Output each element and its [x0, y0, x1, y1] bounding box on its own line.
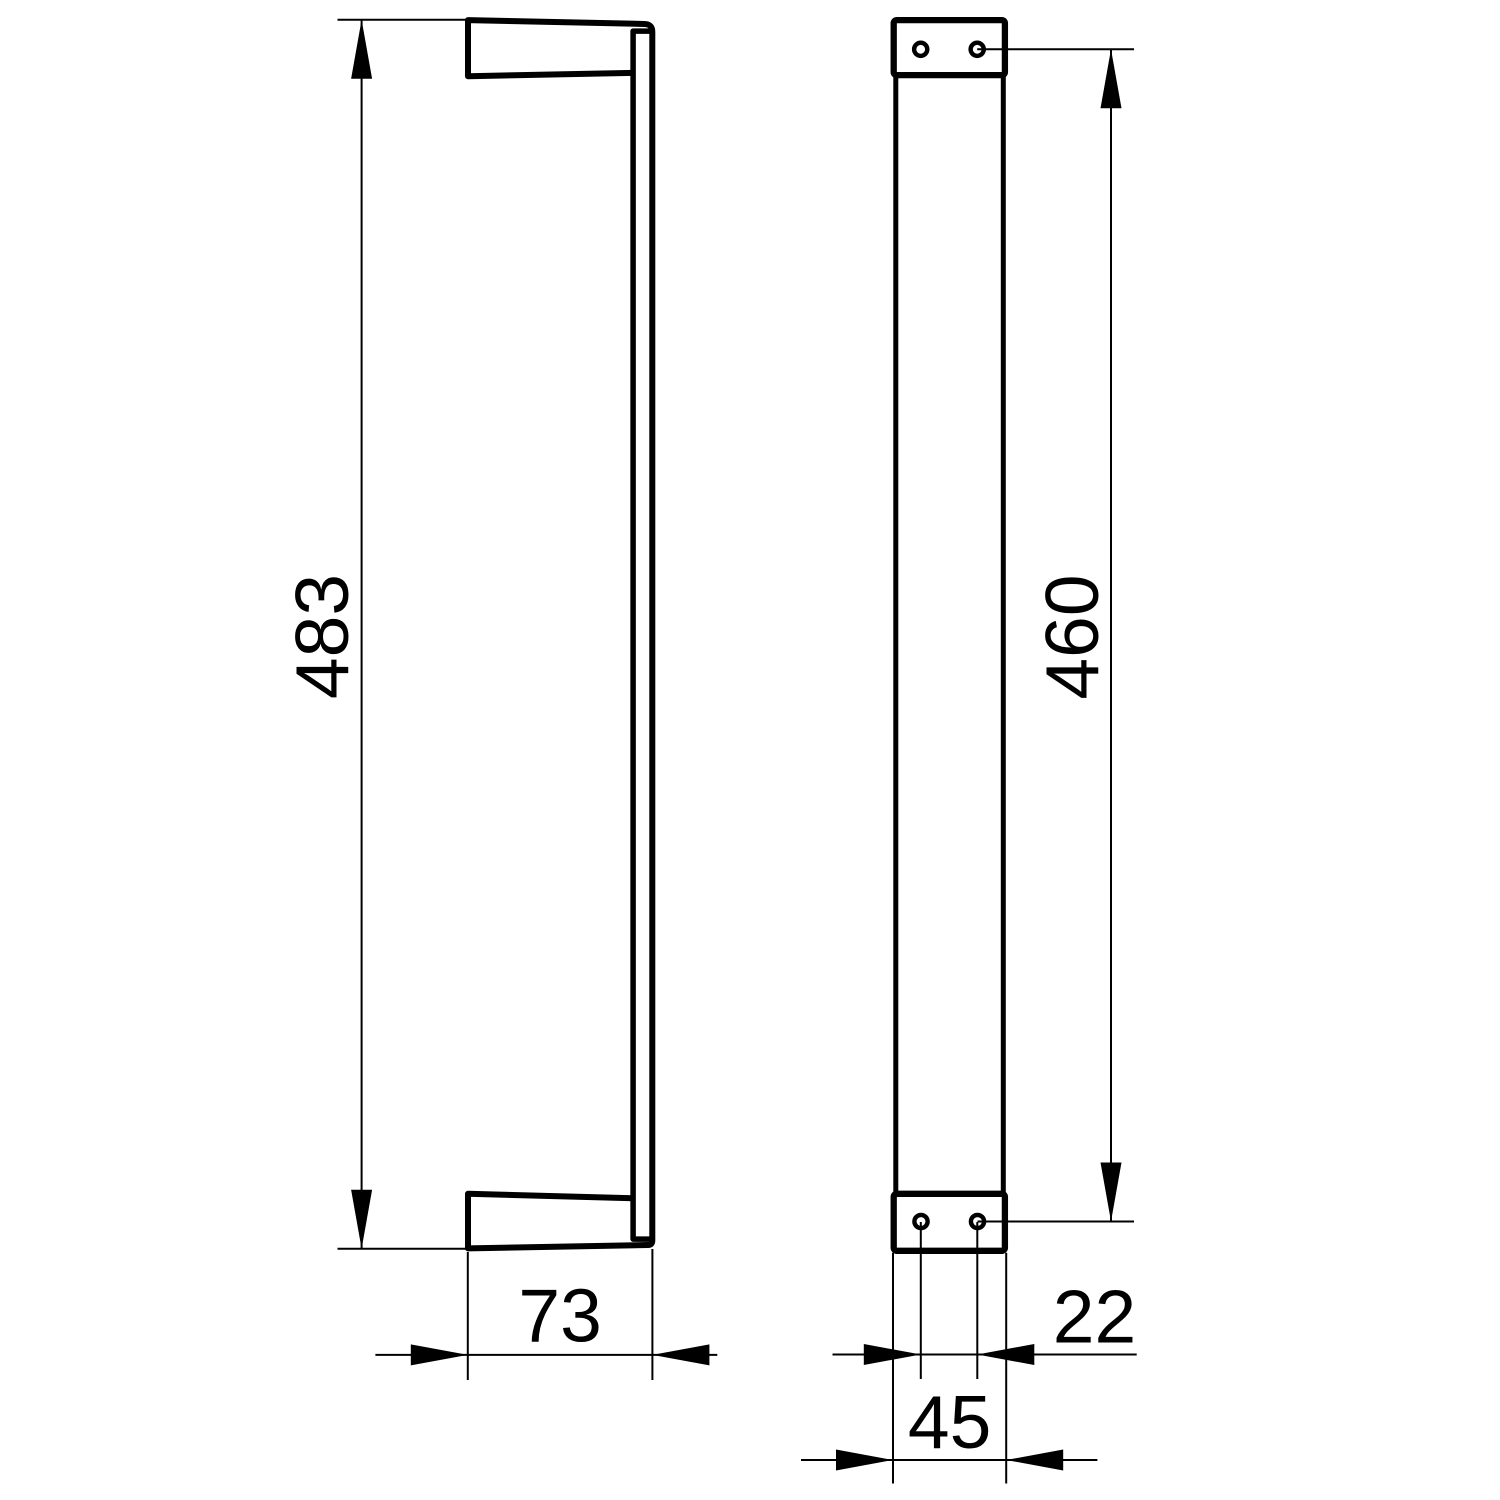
svg-text:460: 460 [1030, 574, 1114, 699]
svg-text:483: 483 [280, 574, 364, 699]
svg-text:73: 73 [518, 1274, 601, 1358]
svg-text:22: 22 [1053, 1274, 1136, 1358]
svg-text:45: 45 [908, 1380, 991, 1464]
